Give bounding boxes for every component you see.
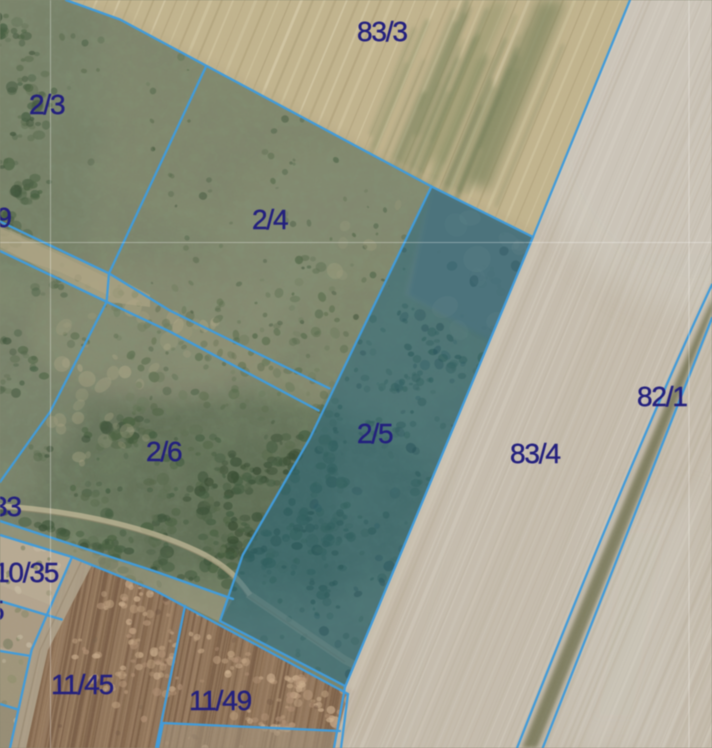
svg-text:83/3: 83/3 [357,16,407,47]
svg-text:2/5: 2/5 [357,418,393,449]
svg-text:83/4: 83/4 [510,438,560,469]
svg-text:82/1: 82/1 [637,381,687,412]
svg-text:2/4: 2/4 [252,204,288,235]
svg-text:33: 33 [0,491,21,522]
svg-text:11/45: 11/45 [51,669,114,700]
svg-text:11/49: 11/49 [189,685,252,716]
svg-text:2/6: 2/6 [146,436,182,467]
svg-text:10/35: 10/35 [0,557,59,588]
svg-text:79: 79 [0,202,11,233]
svg-text:2/3: 2/3 [29,89,65,120]
